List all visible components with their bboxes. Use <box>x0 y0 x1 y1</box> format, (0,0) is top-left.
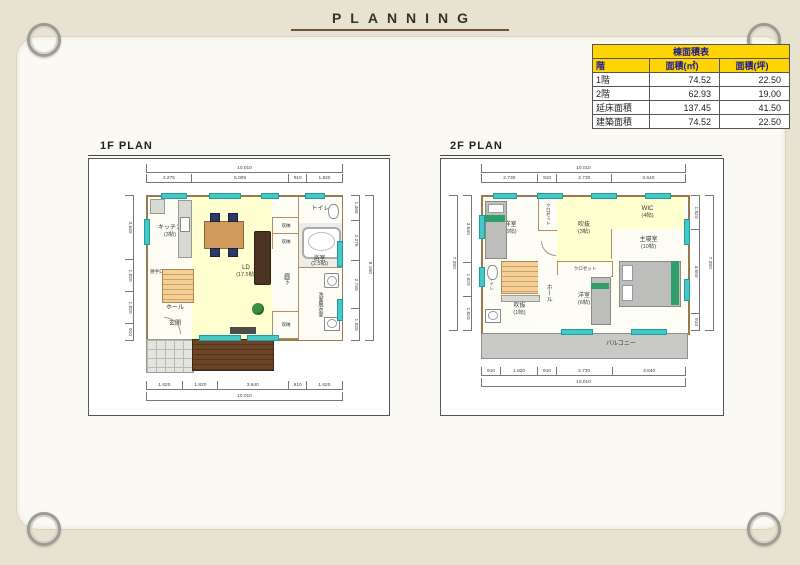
dims-2f-left-total: 7.280 <box>449 195 458 331</box>
table-row: 2階 62.93 19.00 <box>593 87 790 101</box>
cell-tsubo: 22.50 <box>720 115 790 129</box>
bed-stripe <box>591 283 609 289</box>
room-label: 収納 <box>282 223 291 228</box>
toilet-icon <box>487 265 498 280</box>
counter <box>501 295 540 302</box>
kitchen-sink <box>180 217 190 232</box>
room-size: (6帖) <box>578 300 590 307</box>
room-corridor: 廊下 <box>272 249 298 309</box>
plan-1f-frame: 10.010 2.275 5.005 910 1.820 3.640 1.820… <box>88 158 390 416</box>
window-marker <box>493 193 517 199</box>
room-label: ホール <box>544 284 551 302</box>
plant <box>252 303 264 315</box>
dining-table <box>204 221 244 249</box>
dims-2f-bottom-total: 10.010 <box>481 378 686 387</box>
dim-segment: 1.820 <box>306 381 343 390</box>
cell-sqm: 137.45 <box>650 101 720 115</box>
dim-segment: 3.640 <box>611 174 686 183</box>
tv <box>230 327 256 334</box>
dims-1f-bottom-total: 10.010 <box>146 392 343 401</box>
window-marker <box>144 219 150 245</box>
porch <box>146 339 194 373</box>
plan-2f-title: 2F PLAN <box>450 140 503 152</box>
cell-floor: 建築面積 <box>593 115 650 129</box>
dim-segment: 7.280 <box>449 195 458 331</box>
room-balcony: バルコニー <box>591 339 651 351</box>
window-marker <box>537 193 563 199</box>
dim-segment: 10.010 <box>481 164 686 173</box>
dims-1f-bottom: 1.820 1.820 3.640 910 1.820 <box>146 381 343 390</box>
plan-2f-title-rule <box>440 155 722 156</box>
window-marker <box>337 299 343 321</box>
title-rule <box>291 29 509 31</box>
dim-segment: 1.820 <box>463 296 472 331</box>
window-marker <box>337 241 343 267</box>
room-label: ホール <box>166 305 184 312</box>
window-marker <box>561 329 593 335</box>
dim-segment: 910 <box>691 313 700 332</box>
toilet-icon <box>328 204 339 219</box>
window-marker <box>247 335 279 341</box>
title-tagline: · · · · · · · · · · · · · · · · · · · · … <box>0 33 800 37</box>
room-wic: WIC (4帖) <box>611 197 684 230</box>
dims-1f-right-total: 8.190 <box>365 195 374 341</box>
chair <box>210 248 220 257</box>
room-size: (3帖) <box>578 229 590 236</box>
room-hall: ホール <box>158 303 192 315</box>
plan-2f-building: 洋室 (6帖) クロゼット 吹抜 (3帖) WIC (4帖) 主寝室 (10帖) <box>481 195 690 335</box>
table-row: 建築面積 74.52 22.50 <box>593 115 790 129</box>
bed-stripe <box>485 215 505 222</box>
cell-floor: 延床面積 <box>593 101 650 115</box>
dims-2f-left: 3.640 1.820 1.820 <box>463 195 472 331</box>
cell-floor: 1階 <box>593 73 650 87</box>
cell-tsubo: 22.50 <box>720 73 790 87</box>
dims-2f-top-total: 10.010 <box>481 164 686 173</box>
dim-segment: 1.820 <box>306 174 343 183</box>
dim-segment: 7.280 <box>705 195 714 331</box>
dims-2f-top: 2.730 910 2.730 3.640 <box>481 174 686 183</box>
room-label: トイレ <box>311 206 329 213</box>
room-master: 主寝室 (10帖) <box>611 229 685 259</box>
dims-2f-bottom: 910 1.820 910 2.730 3.640 <box>481 367 686 376</box>
basin-icon <box>485 309 501 323</box>
bed-stripe <box>671 261 679 305</box>
window-marker <box>209 193 241 199</box>
dims-2f-right: 1.820 4.550 910 <box>691 195 700 331</box>
balcony <box>481 333 688 359</box>
plan-2f-frame: 10.010 2.730 910 2.730 3.640 7.280 3.640… <box>440 158 724 416</box>
room-size: (1帖) <box>513 310 525 317</box>
room-hall: ホール <box>538 261 557 325</box>
cell-sqm: 62.93 <box>650 87 720 101</box>
window-marker <box>684 279 690 301</box>
window-marker <box>631 329 667 335</box>
window-marker <box>645 193 671 199</box>
bed-pillow <box>488 204 504 213</box>
chair <box>210 213 220 222</box>
room-label: 洗面脱衣室 <box>318 292 324 317</box>
area-table-title: 棟面積表 <box>593 45 790 59</box>
chair <box>228 213 238 222</box>
cell-sqm: 74.52 <box>650 115 720 129</box>
stairs <box>501 261 540 295</box>
bed-pillow <box>622 265 633 281</box>
dim-segment: 910 <box>125 323 134 341</box>
col-header-sqm: 面積(㎡) <box>650 59 720 73</box>
bed-pillow <box>622 285 633 301</box>
page-title: PLANNING <box>323 10 477 26</box>
window-marker <box>261 193 279 199</box>
room-label: クロゼット <box>574 266 597 271</box>
corner-ring-bottom-left <box>27 512 61 546</box>
table-row: 1階 74.52 22.50 <box>593 73 790 87</box>
dim-segment: 3.640 <box>612 367 686 376</box>
window-marker <box>479 267 485 287</box>
room-size: (3帖) <box>164 232 176 239</box>
room-label: 収納 <box>282 322 291 327</box>
plan-1f-building: キッチン (3帖) LD (17.5帖) 収納 収納 廊下 収納 <box>146 195 343 341</box>
col-header-floor: 階 <box>593 59 650 73</box>
window-marker <box>684 219 690 245</box>
dim-segment: 10.010 <box>146 164 343 173</box>
dim-segment: 8.190 <box>365 195 374 341</box>
room-size: (10帖) <box>641 244 656 251</box>
window-marker <box>305 193 325 199</box>
dims-2f-right-total: 7.280 <box>705 195 714 331</box>
cell-tsubo: 19.00 <box>720 87 790 101</box>
dims-1f-right: 1.365 2.275 2.730 1.820 <box>351 195 360 341</box>
window-marker <box>199 335 241 341</box>
plan-1f-title-rule <box>88 155 390 156</box>
chair <box>228 248 238 257</box>
cell-floor: 2階 <box>593 87 650 101</box>
door-arc <box>541 241 556 256</box>
room-void: 吹抜 (3帖) <box>557 197 611 261</box>
col-header-tsubo: 面積(坪) <box>720 59 790 73</box>
washer-icon <box>324 273 339 288</box>
sheet-header: PLANNING · · · · · · · · · · · · · · · ·… <box>0 10 800 37</box>
dims-1f-top: 2.275 5.005 910 1.820 <box>146 174 343 183</box>
room-label: 収納 <box>282 239 291 244</box>
cell-tsubo: 41.50 <box>720 101 790 115</box>
window-marker <box>591 193 617 199</box>
dim-segment: 10.010 <box>481 378 686 387</box>
dim-segment: 1.820 <box>351 308 360 341</box>
plan-1f-title: 1F PLAN <box>100 140 153 152</box>
cell-sqm: 74.52 <box>650 73 720 87</box>
window-marker <box>479 215 485 239</box>
wood-deck <box>192 339 274 371</box>
window-marker <box>161 193 187 199</box>
dims-1f-left: 3.640 1.820 1.820 910 <box>125 195 134 341</box>
sofa <box>254 231 271 285</box>
room-size: (4帖) <box>641 213 653 220</box>
area-table: 棟面積表 階 面積(㎡) 面積(坪) 1階 74.52 22.50 2階 62.… <box>592 44 790 129</box>
dim-segment: 10.010 <box>146 392 343 401</box>
corner-ring-bottom-right <box>747 512 781 546</box>
table-row: 延床面積 137.45 41.50 <box>593 101 790 115</box>
room-label: バルコニー <box>606 341 636 348</box>
room-label: クロゼット <box>546 203 551 226</box>
room-closet-1: クロゼット <box>538 197 559 231</box>
stairs <box>162 269 194 303</box>
fridge <box>150 199 165 214</box>
room-label: 廊下 <box>281 273 288 285</box>
room-size: (17.5帖) <box>236 272 256 279</box>
dims-1f-top-total: 10.010 <box>146 164 343 173</box>
